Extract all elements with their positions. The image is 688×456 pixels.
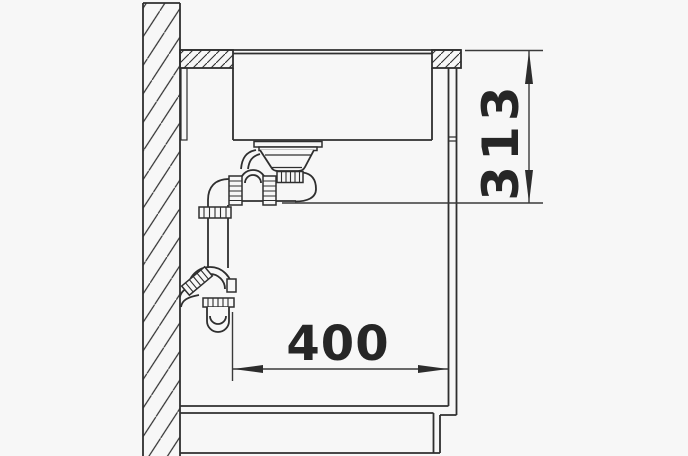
trap-joint-collar [227, 279, 236, 292]
strainer-outlet-nut [277, 172, 303, 183]
pipe-union-nut-left [229, 176, 242, 205]
arrow-left-icon [233, 365, 263, 373]
wall-hatching [143, 3, 180, 456]
sink-bowl [233, 54, 432, 141]
pipe-union-nut-right [263, 176, 276, 205]
down-elbow [208, 179, 229, 200]
toe-kick [180, 413, 440, 453]
cabinet-side-panel [449, 68, 457, 415]
trap-cup [207, 307, 229, 332]
countertop-left-section [180, 50, 233, 68]
cabinet-back-rail [181, 68, 187, 140]
diagram-canvas: 313 400 [0, 0, 688, 456]
drain-strainer [254, 142, 322, 172]
overflow-arch [240, 170, 266, 183]
dimension-horizontal: 400 [233, 316, 448, 373]
arrow-up-icon [525, 51, 533, 84]
dimension-vertical: 313 [472, 51, 533, 203]
countertop-right-section [432, 50, 461, 68]
panel-joint-tick [449, 137, 457, 141]
siphon-trap [180, 200, 236, 332]
trap-cup-nut [203, 298, 234, 307]
dimension-label-horizontal: 400 [286, 316, 389, 372]
dimension-label-vertical: 313 [472, 81, 530, 200]
arrow-right-icon [418, 365, 448, 373]
sink-installation-diagram: 313 400 [0, 0, 688, 456]
wall-section [143, 3, 180, 456]
cabinet-bottom [180, 406, 457, 415]
trap-inlet-nut [199, 207, 231, 218]
strainer-flange [254, 142, 322, 148]
overflow-elbow [241, 150, 260, 169]
